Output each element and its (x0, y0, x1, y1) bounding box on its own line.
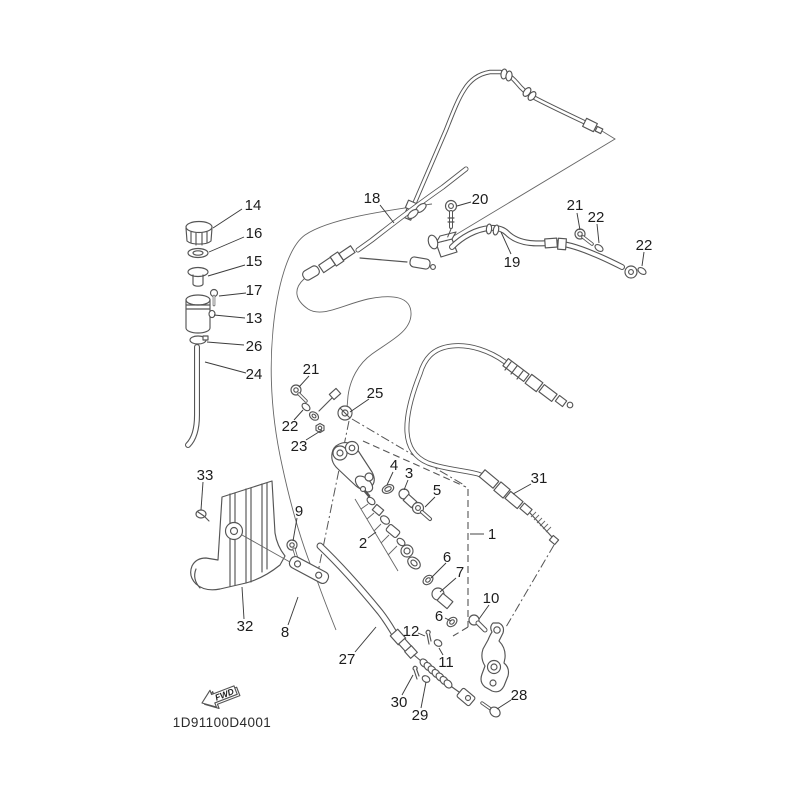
callout-leader-7 (440, 578, 456, 592)
callout-33: 33 (197, 467, 214, 484)
callout-13: 13 (246, 310, 263, 327)
callout-23: 23 (291, 438, 308, 455)
reservoir-group (186, 222, 218, 446)
diaphragm-16 (188, 249, 208, 258)
callout-18: 18 (364, 190, 381, 207)
callout-3: 3 (405, 465, 413, 482)
callout-leader-22 (642, 252, 644, 266)
cable-31 (407, 346, 573, 627)
washer-6-upper (421, 573, 435, 586)
tank-outlet (209, 310, 215, 317)
callout-leader-27 (355, 627, 376, 652)
callout-leader-30 (402, 675, 413, 695)
callout-14: 14 (245, 197, 262, 214)
callout-leader-21 (577, 213, 580, 230)
callout-5: 5 (433, 482, 441, 499)
callout-11: 11 (438, 654, 454, 671)
brake-hose-19 (427, 201, 648, 279)
callout-leader-31 (513, 484, 531, 494)
guard-bracket-group (191, 481, 331, 590)
callout-leader-2 (368, 532, 376, 538)
callout-6: 6 (443, 549, 451, 566)
callout-6: 6 (435, 608, 443, 625)
callout-leader-33 (201, 482, 203, 510)
callout-28: 28 (511, 687, 528, 704)
screw-9 (287, 540, 297, 550)
callout-leader-24 (205, 362, 246, 373)
callout-21: 21 (567, 197, 584, 214)
cable-18-end-cap (301, 264, 321, 281)
callout-20: 20 (472, 191, 489, 208)
callout-25: 25 (367, 385, 384, 402)
callout-leader-14 (213, 209, 242, 228)
callout-22: 22 (282, 418, 299, 435)
guard-boss (226, 523, 243, 540)
callout-22: 22 (588, 209, 605, 226)
callout-24: 24 (246, 366, 263, 383)
grommet-15 (188, 268, 208, 277)
callout-29: 29 (412, 707, 429, 724)
callout-1: 1 (488, 526, 496, 543)
callout-22: 22 (636, 237, 653, 254)
callout-leader-10 (479, 605, 489, 619)
cable-eyelet (308, 410, 320, 422)
callout-leader-26 (207, 342, 244, 345)
callout-leader-18 (380, 205, 394, 223)
bracket-8 (288, 555, 331, 585)
clip-11 (433, 638, 443, 647)
parts-diagram-page: FWD 1D91100D4001 14161517132624182019212… (0, 0, 800, 800)
callout-leader-8 (288, 597, 298, 625)
callout-9: 9 (295, 503, 303, 520)
drawing-code: 1D91100D4001 (173, 715, 271, 730)
callout-leader-15 (208, 265, 245, 276)
cable-31-upper-ferrule (503, 359, 529, 382)
callout-7: 7 (456, 564, 464, 581)
bolt-20 (446, 201, 457, 212)
callout-19: 19 (504, 254, 521, 271)
callout-leader-29 (421, 682, 426, 708)
callout-12: 12 (403, 623, 420, 640)
callout-8: 8 (281, 624, 289, 641)
brake-pipe (403, 69, 615, 246)
callout-21: 21 (303, 361, 320, 378)
callout-leader-32 (242, 587, 244, 619)
fwd-arrow: FWD (199, 681, 242, 713)
callout-leader-9 (293, 518, 297, 541)
callout-leader-23 (306, 430, 322, 440)
callout-leader-20 (457, 202, 471, 206)
callout-26: 26 (246, 338, 263, 355)
washer-6-lower (445, 615, 459, 628)
cotter-pin-30 (413, 666, 419, 679)
cable-18-barrel-end (409, 256, 430, 269)
callout-2: 2 (359, 535, 367, 552)
callout-leader-17 (219, 293, 246, 296)
callout-10: 10 (483, 590, 500, 607)
cable-18-inner-wire (360, 258, 407, 262)
callout-leader-16 (209, 237, 244, 252)
callout-4: 4 (390, 457, 398, 474)
exploded-parts-diagram: FWD 1D91100D4001 14161517132624182019212… (0, 0, 800, 800)
washer-22-lower (637, 266, 648, 276)
cotter-pin-12 (426, 630, 431, 644)
callout-32: 32 (237, 618, 254, 635)
cable-31-lower-ferrule (479, 470, 499, 488)
pipe-assembly-leader (437, 131, 615, 246)
callout-15: 15 (246, 253, 263, 270)
callout-leader-13 (214, 315, 245, 318)
callout-27: 27 (339, 651, 356, 668)
cable-guide-group (291, 385, 464, 577)
callout-16: 16 (246, 225, 263, 242)
callout-leader-22 (597, 224, 599, 243)
reservoir-cap-14 (186, 222, 212, 233)
callout-30: 30 (391, 694, 408, 711)
callout-17: 17 (246, 282, 263, 299)
master-cylinder-group (332, 442, 430, 572)
callout-31: 31 (531, 470, 548, 487)
callout-leader-28 (497, 700, 511, 709)
cable-31-position-line (506, 545, 554, 627)
outline-inner-loop (297, 279, 411, 408)
callout-layer: 1416151713262418201921222221222325435311… (197, 190, 653, 724)
o-ring-4 (381, 483, 395, 495)
